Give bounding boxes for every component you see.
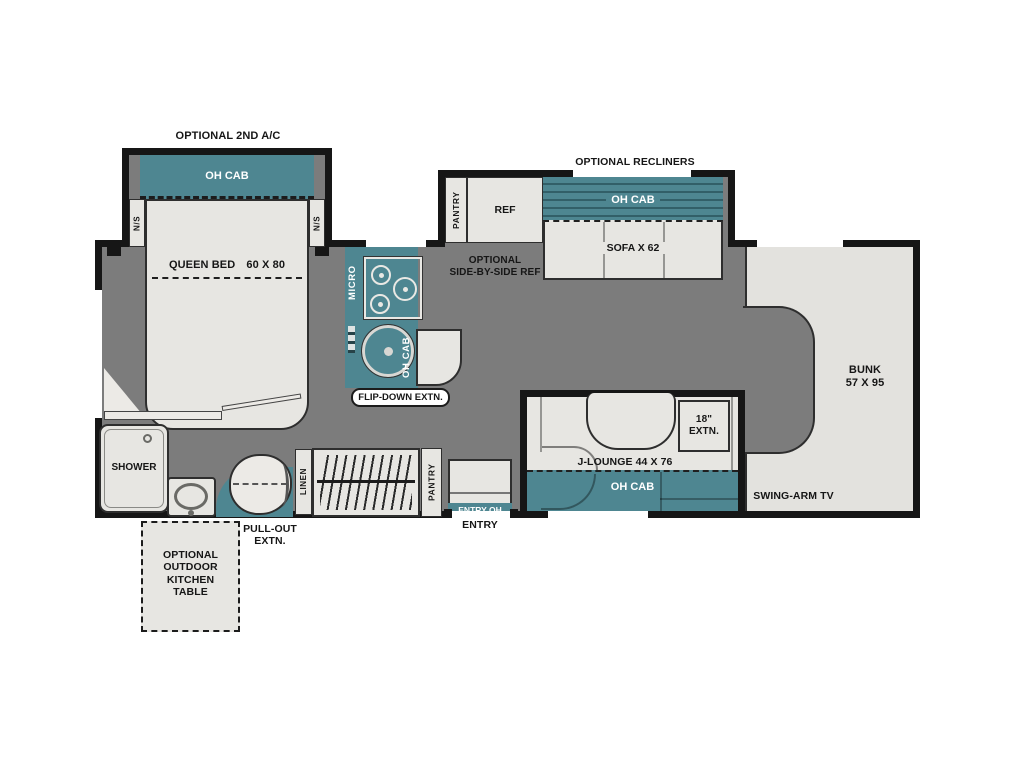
entry-steps — [448, 459, 512, 505]
counter-flange — [416, 329, 462, 386]
stove-burner — [370, 294, 390, 314]
window-kitchen-top — [366, 240, 426, 247]
rv-floor-plan: OPTIONAL 2ND A/C OH CAB N/S N/S QUEEN BE… — [0, 0, 1024, 768]
optional-ref-line2: SIDE-BY-SIDE REF — [430, 267, 560, 279]
bedroom-oh-cab-label: OH CAB — [205, 170, 248, 182]
outdoor-line4: TABLE — [143, 586, 238, 598]
pull-out-line2: EXTN. — [235, 535, 305, 547]
nightstand-left-label: N/S — [129, 199, 145, 247]
outdoor-line3: KITCHEN — [143, 574, 238, 586]
flip-down-extn-label: FLIP-DOWN EXTN. — [358, 392, 442, 403]
stove-burner — [393, 277, 417, 301]
window-galley-top — [573, 170, 691, 177]
wall-stub-bed-left — [107, 247, 121, 256]
shower-drain — [143, 434, 152, 443]
sofa-oh-cab: OH CAB — [543, 177, 723, 222]
vanity-shelf — [104, 411, 222, 420]
ref-label: REF — [495, 204, 516, 216]
extn-line2: EXTN. — [689, 426, 719, 438]
outdoor-table-label: OPTIONAL OUTDOOR KITCHEN TABLE — [143, 549, 238, 599]
jlounge-left-seam — [540, 397, 542, 452]
stove-burner — [371, 265, 391, 285]
swing-arm-tv-label: SWING-ARM TV — [736, 490, 851, 502]
sink-marks — [348, 326, 355, 353]
jlounge-extn-label: 18" EXTN. — [689, 414, 719, 438]
jlounge-table — [586, 393, 676, 450]
pantry-top-label: PANTRY — [445, 177, 467, 243]
window-jlounge-bottom — [548, 511, 648, 518]
jlounge-label: J-LOUNGE 44 X 76 — [550, 456, 700, 468]
pull-out-extn-label: PULL-OUT EXTN. — [235, 523, 305, 548]
bed-slide-dash — [152, 277, 302, 279]
wall-stub-entry-left — [444, 509, 452, 518]
wall-stub-entry-right — [510, 509, 518, 518]
queen-bed-name: QUEEN BED — [165, 259, 239, 272]
jlounge-18-extn: 18" EXTN. — [678, 400, 730, 452]
optional-ref-line1: OPTIONAL — [430, 255, 560, 267]
micro-label: MICRO — [345, 252, 360, 314]
optional-side-by-side-ref-label: OPTIONAL SIDE-BY-SIDE REF — [430, 255, 560, 279]
linen-label: LINEN — [295, 449, 312, 515]
pull-out-line1: PULL-OUT — [235, 523, 305, 535]
optional-2nd-ac-label: OPTIONAL 2ND A/C — [128, 130, 328, 143]
sofa-label: SOFA X 62 — [545, 242, 721, 254]
vanity-faucet — [188, 510, 194, 516]
stove — [364, 257, 422, 319]
jlounge-right-seam — [731, 397, 733, 470]
queen-bed-label: QUEEN BED 60 X 80 — [145, 259, 309, 272]
sofa: SOFA X 62 — [543, 220, 723, 280]
kitchen-oh-cab-label: OH CAB — [399, 328, 414, 386]
flip-down-extn: FLIP-DOWN EXTN. — [351, 388, 450, 407]
bunk-label: BUNK 57 X 95 — [800, 364, 930, 390]
vanity-sink — [174, 483, 208, 510]
shower: SHOWER — [99, 424, 169, 513]
bunk-size: 57 X 95 — [800, 377, 930, 390]
toilet-seat-arc — [273, 463, 289, 507]
bedroom-oh-cab: OH CAB — [140, 155, 314, 199]
optional-recliners-label: OPTIONAL RECLINERS — [533, 156, 737, 168]
jlounge-oh-cab: OH CAB — [527, 470, 738, 511]
queen-bed-size: 60 X 80 — [242, 259, 289, 272]
entry-door-opening — [452, 511, 510, 518]
nightstand-right-label: N/S — [309, 199, 325, 247]
toilet — [229, 454, 292, 515]
jlounge-oh-cab-label: OH CAB — [527, 481, 738, 493]
window-bunk-top — [757, 240, 843, 247]
sofa-oh-cab-label: OH CAB — [606, 194, 659, 206]
extn-line1: 18" — [689, 414, 719, 426]
sink-drain — [384, 347, 393, 356]
pantry-bottom-label: PANTRY — [421, 448, 442, 517]
outdoor-kitchen-table: OPTIONAL OUTDOOR KITCHEN TABLE — [141, 521, 240, 632]
entry-label: ENTRY — [445, 519, 515, 531]
bunk-name: BUNK — [800, 364, 930, 377]
bath-vanity — [167, 477, 216, 517]
entry-step-line — [450, 492, 510, 494]
outdoor-line2: OUTDOOR — [143, 561, 238, 573]
jlounge-cab-shelf — [660, 498, 738, 500]
outdoor-line1: OPTIONAL — [143, 549, 238, 561]
wardrobe — [312, 448, 420, 517]
wardrobe-rod — [317, 480, 415, 483]
refrigerator: REF — [467, 177, 543, 243]
wall-stub-bed-right — [315, 247, 329, 256]
window-left-wall — [95, 290, 102, 418]
shower-label: SHOWER — [101, 462, 167, 473]
